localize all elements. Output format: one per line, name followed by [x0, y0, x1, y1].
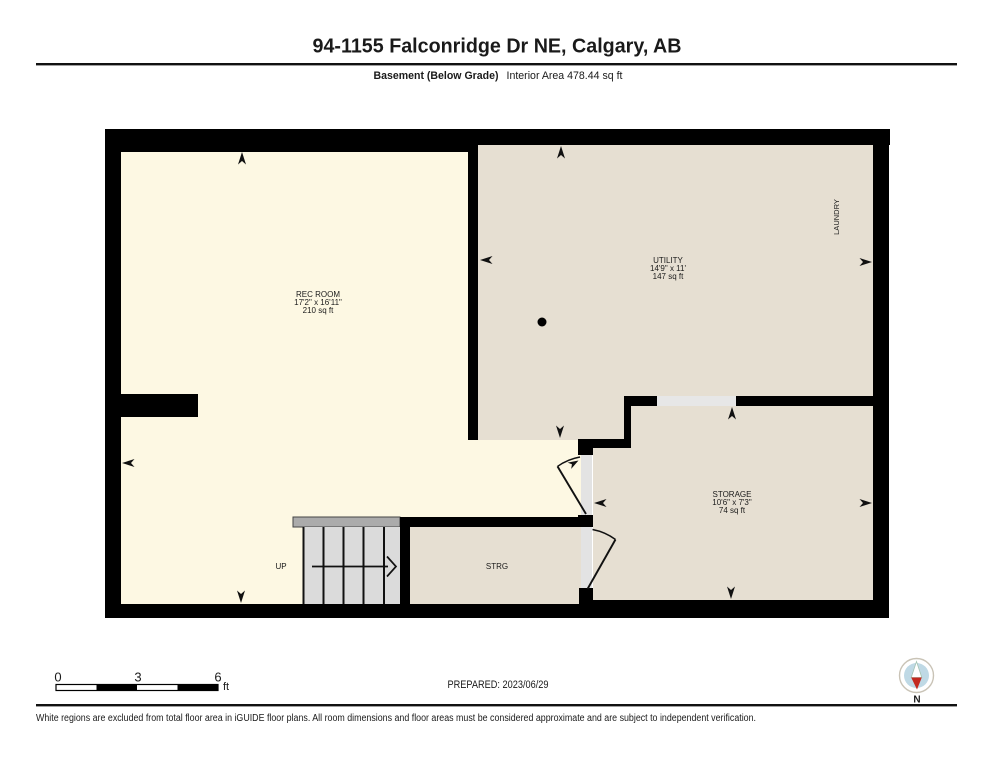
svg-text:N: N	[913, 695, 920, 706]
svg-text:White regions are excluded fro: White regions are excluded from total fl…	[36, 713, 756, 724]
svg-text:3: 3	[134, 670, 141, 685]
svg-text:PREPARED: 2023/06/29: PREPARED: 2023/06/29	[448, 679, 549, 691]
svg-text:94-1155 Falconridge Dr NE, Cal: 94-1155 Falconridge Dr NE, Calgary, AB	[313, 36, 682, 58]
svg-text:74 sq ft: 74 sq ft	[719, 506, 746, 515]
svg-text:6: 6	[214, 670, 221, 685]
svg-text:STRG: STRG	[486, 562, 508, 571]
svg-text:0: 0	[54, 670, 61, 685]
svg-text:Interior Area 478.44 sq ft: Interior Area 478.44 sq ft	[507, 70, 623, 82]
svg-text:LAUNDRY: LAUNDRY	[832, 199, 841, 235]
svg-text:UP: UP	[275, 562, 286, 571]
svg-text:147 sq ft: 147 sq ft	[653, 272, 684, 281]
svg-text:ft: ft	[223, 681, 229, 693]
svg-text:210 sq ft: 210 sq ft	[303, 306, 334, 315]
svg-text:Basement (Below Grade): Basement (Below Grade)	[374, 70, 499, 82]
